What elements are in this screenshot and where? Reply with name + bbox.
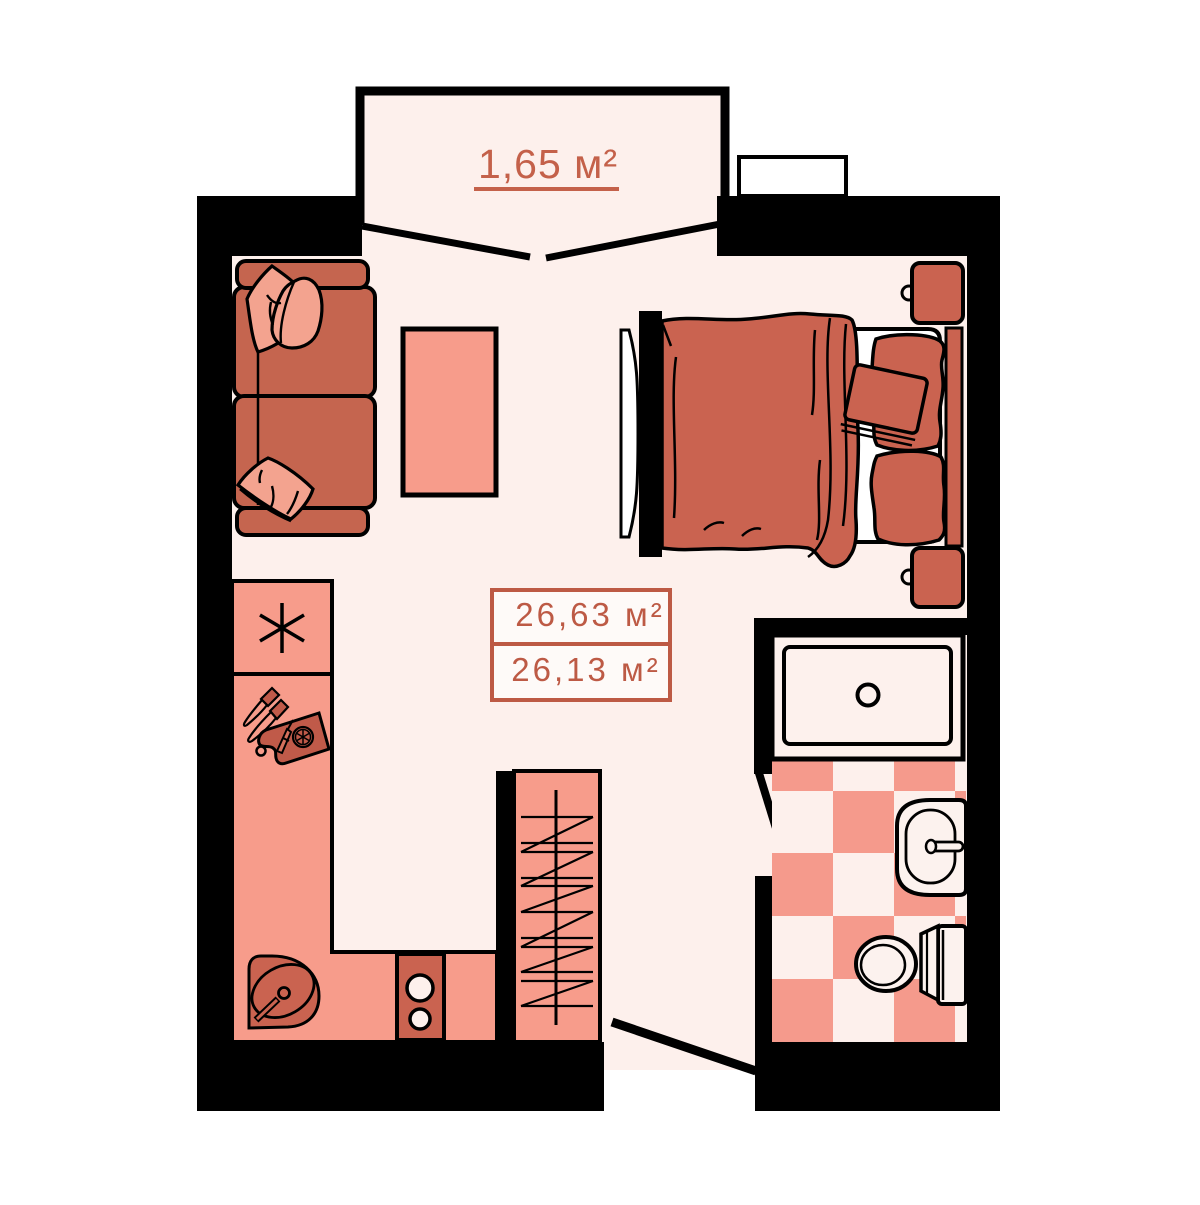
svg-text:26,13 м²: 26,13 м² bbox=[511, 651, 660, 688]
svg-text:1,65 м²: 1,65 м² bbox=[478, 141, 618, 187]
svg-text:26,63 м²: 26,63 м² bbox=[515, 596, 664, 633]
